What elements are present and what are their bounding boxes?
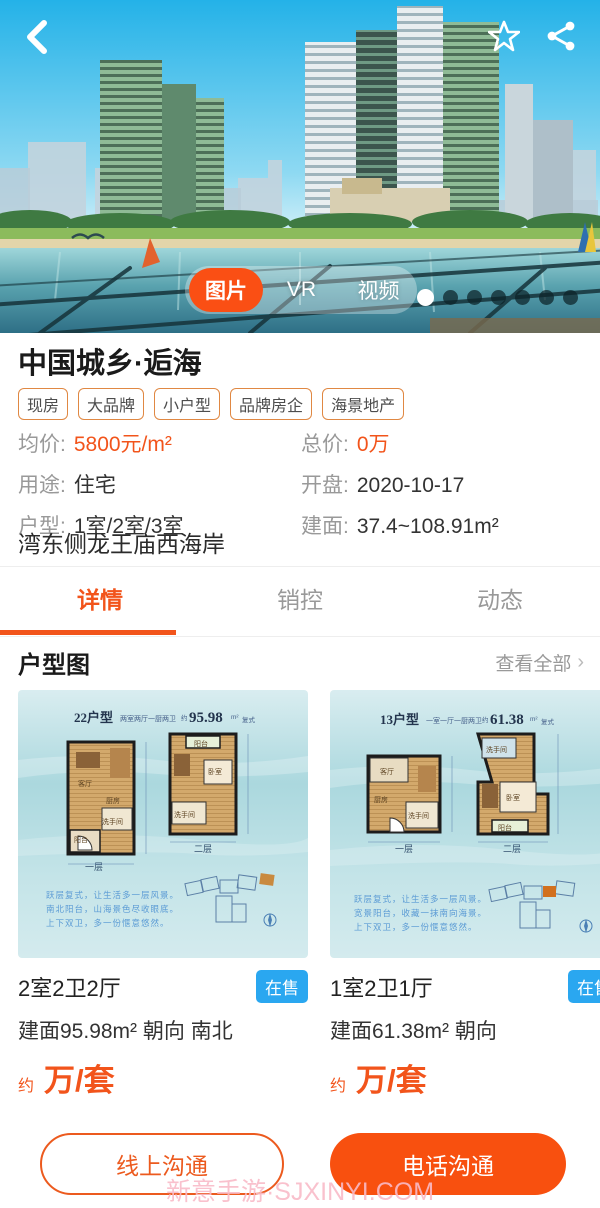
floorplan-card[interactable]: 22户型 两室两厅一厨两卫 约 95.98 m² 复式 客厅 厨房 洗手间 阳台… bbox=[18, 690, 308, 1100]
carousel-dot[interactable] bbox=[563, 290, 578, 305]
unit-rooms: 1室2卫1厅 bbox=[330, 971, 568, 1003]
tab-details[interactable]: 详情 bbox=[0, 572, 200, 634]
media-tab-video[interactable]: 视频 bbox=[340, 275, 417, 305]
media-tab-vr[interactable]: VR bbox=[263, 278, 340, 302]
svg-text:上下双卫，多一份惬意悠然。: 上下双卫，多一份惬意悠然。 bbox=[46, 918, 170, 928]
plan-unit-label: 22户型 bbox=[74, 710, 113, 725]
svg-text:m²: m² bbox=[231, 714, 239, 721]
media-tab-group: 图片 VR 视频 bbox=[185, 266, 417, 314]
svg-text:阳台: 阳台 bbox=[194, 739, 208, 748]
unit-price: 万/套 bbox=[356, 1055, 427, 1100]
floorplan-card[interactable]: 13户型 一室一厅一厨两卫 约 61.38 m² 复式 客厅 厨房 洗手间 一层… bbox=[330, 690, 600, 1100]
plan-desc-label: 一室一厅一厨两卫 bbox=[426, 716, 482, 725]
media-tab-photos[interactable]: 图片 bbox=[189, 268, 263, 312]
svg-text:约: 约 bbox=[181, 713, 188, 722]
phone-call-button[interactable]: 电话沟通 bbox=[330, 1133, 566, 1195]
share-icon[interactable] bbox=[546, 21, 576, 51]
divider bbox=[0, 566, 600, 567]
fact-avg-price: 均价: 5800元/m² bbox=[18, 428, 301, 458]
fact-total-price: 总价: 0万 bbox=[301, 428, 584, 458]
svg-text:复式: 复式 bbox=[242, 715, 256, 724]
svg-text:约: 约 bbox=[482, 715, 489, 724]
svg-text:卧室: 卧室 bbox=[208, 767, 222, 776]
fact-open-date: 开盘: 2020-10-17 bbox=[301, 469, 584, 499]
back-icon[interactable] bbox=[22, 20, 52, 54]
tag: 大品牌 bbox=[78, 388, 144, 420]
svg-text:卧室: 卧室 bbox=[506, 793, 520, 802]
tag: 小户型 bbox=[154, 388, 220, 420]
status-badge: 在售 bbox=[568, 970, 600, 1003]
tab-sales-control[interactable]: 销控 bbox=[200, 572, 400, 634]
unit-rooms: 2室2卫2厅 bbox=[18, 971, 256, 1003]
status-badge: 在售 bbox=[256, 970, 308, 1003]
svg-text:南北阳台，山海景色尽收眼底。: 南北阳台，山海景色尽收眼底。 bbox=[46, 904, 179, 914]
floor2-caption: 二层 bbox=[194, 844, 212, 854]
floor1-caption: 一层 bbox=[395, 844, 413, 854]
fact-area-range: 建面: 37.4~108.91m² bbox=[301, 510, 584, 540]
svg-text:阳台: 阳台 bbox=[74, 835, 88, 844]
tag: 海景地产 bbox=[322, 388, 404, 420]
plan-tagline: 跃层复式，让生活多一层风景。 bbox=[46, 890, 179, 900]
carousel-dot[interactable] bbox=[539, 290, 554, 305]
topbar bbox=[0, 0, 600, 70]
fact-usage: 用途: 住宅 bbox=[18, 469, 301, 499]
active-tab-underline bbox=[0, 630, 176, 635]
tag-row: 现房 大品牌 小户型 品牌房企 海景地产 bbox=[18, 388, 414, 420]
carousel-dot[interactable] bbox=[491, 290, 506, 305]
svg-text:m²: m² bbox=[530, 716, 538, 723]
page-title: 中国城乡·逅海 bbox=[18, 340, 202, 382]
plan-area-value: 95.98 bbox=[189, 710, 223, 726]
svg-text:复式: 复式 bbox=[541, 717, 555, 726]
divider bbox=[0, 636, 600, 637]
svg-text:宽景阳台，收藏一抹南向海景。: 宽景阳台，收藏一抹南向海景。 bbox=[354, 908, 487, 918]
unit-area: 建面95.98m² 朝向 南北 bbox=[18, 1015, 308, 1045]
carousel-dot[interactable] bbox=[467, 290, 482, 305]
svg-text:洗手间: 洗手间 bbox=[408, 811, 429, 820]
price-prefix: 约 bbox=[330, 1072, 346, 1096]
svg-text:厨房: 厨房 bbox=[106, 796, 120, 805]
floorplan-image[interactable]: 22户型 两室两厅一厨两卫 约 95.98 m² 复式 客厅 厨房 洗手间 阳台… bbox=[18, 690, 308, 958]
svg-text:客厅: 客厅 bbox=[78, 779, 92, 788]
unit-area: 建面61.38m² 朝向 bbox=[330, 1015, 600, 1045]
svg-text:客厅: 客厅 bbox=[380, 767, 394, 776]
svg-text:洗手间: 洗手间 bbox=[486, 745, 507, 754]
plan-tagline: 跃层复式，让生活多一层风景。 bbox=[354, 894, 487, 904]
footer-action-bar: 线上沟通 电话沟通 bbox=[0, 1100, 600, 1208]
svg-text:厨房: 厨房 bbox=[374, 795, 388, 804]
svg-text:阳台: 阳台 bbox=[498, 823, 512, 832]
tag: 现房 bbox=[18, 388, 68, 420]
carousel-dots[interactable] bbox=[417, 289, 587, 306]
online-chat-button[interactable]: 线上沟通 bbox=[40, 1133, 284, 1195]
svg-text:洗手间: 洗手间 bbox=[102, 817, 123, 826]
see-all-link[interactable]: 查看全部 › bbox=[495, 649, 584, 676]
plan-desc-label: 两室两厅一厨两卫 bbox=[120, 714, 176, 723]
address: 湾东侧龙王庙西海岸 bbox=[18, 525, 225, 559]
floorplan-image[interactable]: 13户型 一室一厅一厨两卫 约 61.38 m² 复式 客厅 厨房 洗手间 一层… bbox=[330, 690, 600, 958]
svg-text:洗手间: 洗手间 bbox=[174, 810, 195, 819]
plan-area-value: 61.38 bbox=[490, 712, 524, 728]
price-prefix: 约 bbox=[18, 1072, 34, 1096]
detail-tab-bar: 详情 销控 动态 bbox=[0, 572, 600, 634]
carousel-dot[interactable] bbox=[417, 289, 434, 306]
unit-price: 万/套 bbox=[44, 1055, 115, 1100]
hero-photo[interactable]: 图片 VR 视频 bbox=[0, 0, 600, 333]
svg-text:上下双卫，多一份惬意悠然。: 上下双卫，多一份惬意悠然。 bbox=[354, 922, 478, 932]
section-title-floorplans: 户型图 bbox=[18, 645, 495, 680]
floor1-caption: 一层 bbox=[85, 862, 103, 872]
carousel-dot[interactable] bbox=[515, 290, 530, 305]
carousel-dot[interactable] bbox=[443, 290, 458, 305]
plan-unit-label: 13户型 bbox=[380, 712, 419, 727]
tag: 品牌房企 bbox=[230, 388, 312, 420]
chevron-right-icon: › bbox=[577, 651, 584, 674]
tab-updates[interactable]: 动态 bbox=[400, 572, 600, 634]
star-icon[interactable] bbox=[488, 20, 520, 52]
floor2-caption: 二层 bbox=[503, 844, 521, 854]
